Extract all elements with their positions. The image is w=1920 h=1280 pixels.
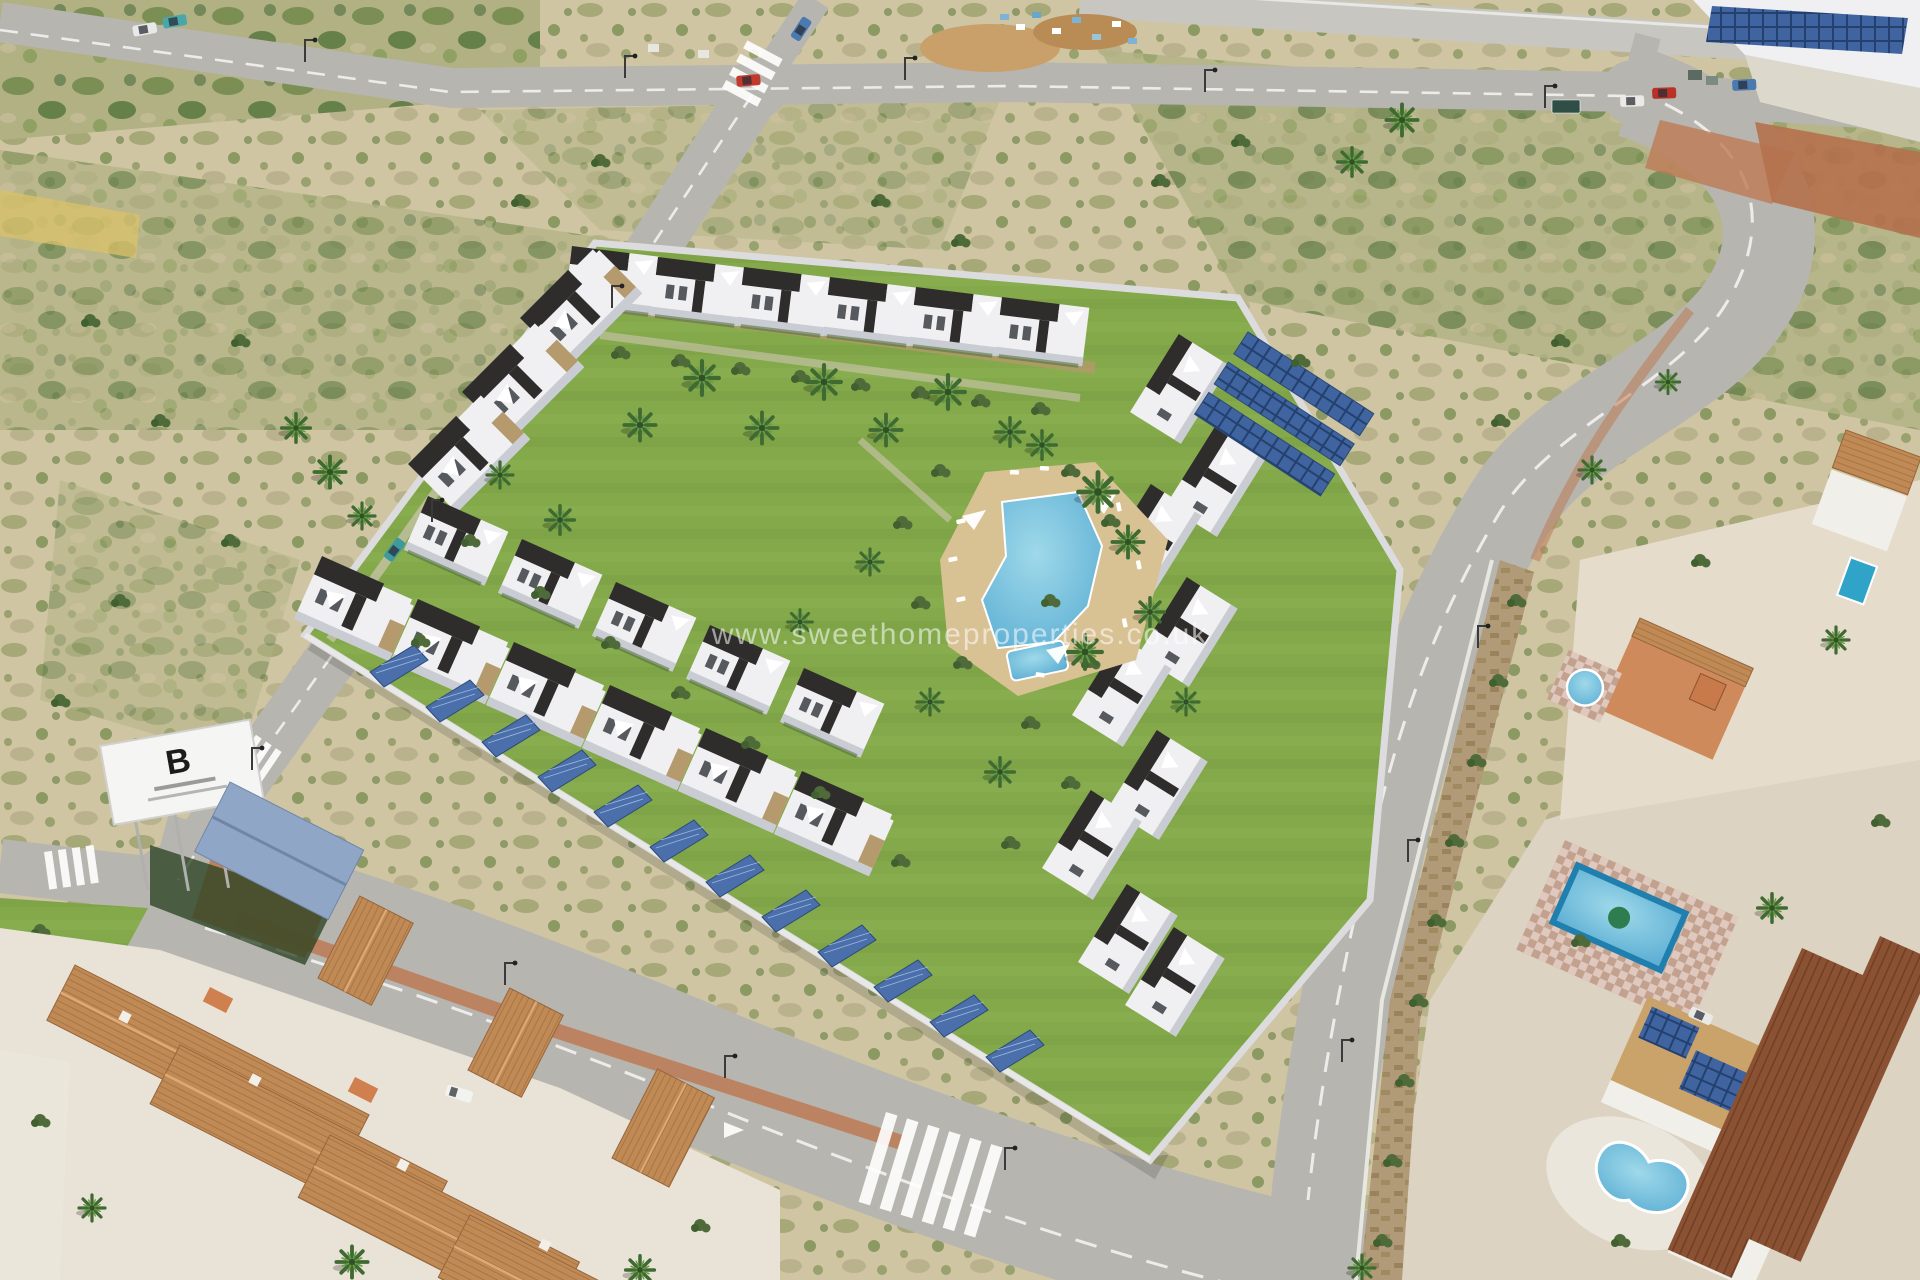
sun-lounger xyxy=(1040,466,1049,471)
townhouse xyxy=(651,257,746,328)
street-wall xyxy=(0,1050,70,1280)
car xyxy=(1652,87,1676,99)
road-sign xyxy=(1552,100,1580,113)
shed xyxy=(648,44,659,52)
sun-lounger xyxy=(1010,470,1019,475)
kiosk xyxy=(1688,70,1702,80)
townhouse xyxy=(909,287,1004,358)
townhouse xyxy=(823,277,918,348)
car xyxy=(736,74,761,87)
townhouse xyxy=(995,297,1090,368)
car xyxy=(1620,95,1644,107)
car xyxy=(1732,79,1757,91)
shed xyxy=(698,50,709,58)
kiosk xyxy=(1706,76,1718,85)
aerial-render: B xyxy=(0,0,1920,1280)
townhouse xyxy=(737,267,832,338)
aerial-photo-stage: B xyxy=(0,0,1920,1280)
